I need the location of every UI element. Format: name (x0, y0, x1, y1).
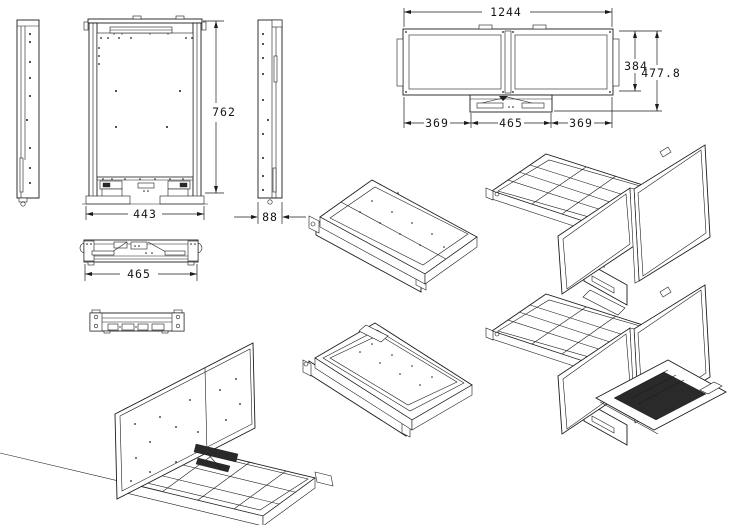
iso-view-monitors-open-back-left (0, 343, 333, 525)
dimension-label-443: 443 (133, 207, 157, 221)
dimension-label-369-right: 369 (569, 116, 593, 130)
dimension-label-369-left: 369 (425, 116, 449, 130)
iso-view-drawer-closed-upper (309, 180, 477, 292)
technical-drawing-sheet: 762 443 88 (0, 0, 750, 525)
dimension-443: 443 (86, 206, 204, 221)
dimension-88: 88 (234, 202, 306, 224)
dimension-label-88: 88 (262, 210, 278, 224)
iso-view-drawer-closed-lower (303, 323, 472, 437)
dimension-465-front: 465 (85, 264, 197, 281)
front-view-folded (82, 16, 208, 204)
dimension-label-477-8: 477.8 (641, 66, 681, 80)
drawer-front-view (80, 240, 202, 265)
front-view-unfolded (397, 25, 619, 112)
iso-view-monitors-open-rear (486, 145, 710, 315)
dimension-762: 762 (203, 21, 236, 193)
dimension-label-465-top: 465 (499, 116, 523, 130)
side-view-right (258, 20, 282, 204)
dimension-label-465-front: 465 (127, 267, 151, 281)
dimension-384: 384 (619, 31, 662, 91)
drawer-rear-view (90, 310, 184, 333)
dimension-label-1244: 1244 (490, 5, 522, 19)
dual-monitor-rack-console-drawing: 762 443 88 (0, 0, 750, 525)
dimension-label-762: 762 (212, 105, 236, 119)
side-view-left (17, 20, 39, 206)
dimension-1244: 1244 (404, 5, 612, 27)
